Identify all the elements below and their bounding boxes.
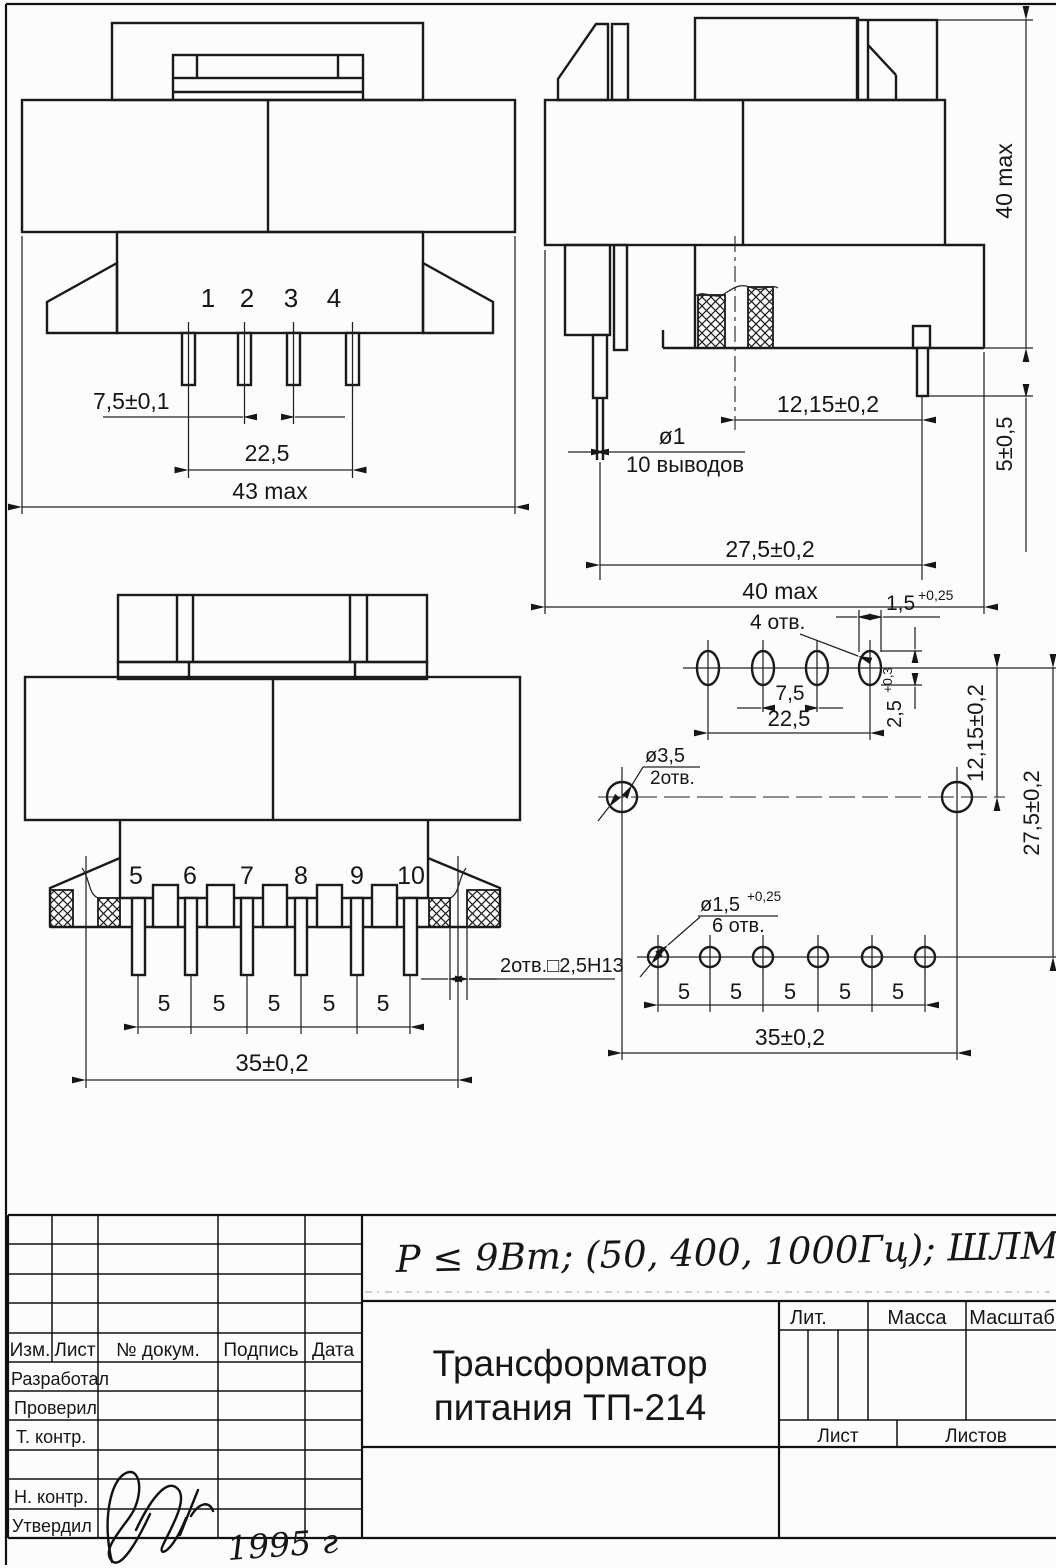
transformer-drawing-svg: 1 2 3 4 7,5±0,1 22,5 43 max xyxy=(0,0,1056,1568)
pitch-label: 5 xyxy=(213,990,226,1016)
dim-pin-span: 22,5 xyxy=(245,440,290,466)
title-block-roles: Разработал Проверил Т. контр. Н. контр. … xyxy=(11,1369,109,1536)
document-title-line1: Трансформатор xyxy=(432,1343,707,1384)
dim-hole-span: 35±0,2 xyxy=(235,1050,308,1077)
pin-2-label: 2 xyxy=(240,283,254,313)
front-view-outline xyxy=(22,23,515,385)
dim-pin-length: 5±0,5 xyxy=(992,417,1017,472)
pitch-label: 5 xyxy=(892,979,904,1004)
rear-view-outline xyxy=(25,595,520,975)
document-title-line2: питания ТП-214 xyxy=(434,1387,706,1428)
pin-9-label: 9 xyxy=(350,862,364,890)
side-view: ø1 10 выводов 12,15±0,2 27,5±0,2 40 max … xyxy=(545,18,1033,614)
mass-label: Масса xyxy=(887,1307,947,1329)
pin-4-label: 4 xyxy=(327,283,341,313)
pitch-label: 5 xyxy=(377,990,390,1016)
role-nkontr: Н. контр. xyxy=(14,1487,88,1507)
pin-5-label: 5 xyxy=(129,862,143,890)
big-holes xyxy=(598,767,1005,1060)
role-tkontr: Т. контр. xyxy=(16,1427,86,1447)
pin-1-label: 1 xyxy=(201,283,215,313)
dim-depth: 40 max xyxy=(742,578,818,604)
footprint-row-spacing: 27,5±0,2 xyxy=(1019,770,1044,855)
slot-pitch-dim: 7,5 xyxy=(775,682,804,705)
small-hole-count-label: 6 отв. xyxy=(712,915,765,937)
col-izm: Изм. xyxy=(10,1340,51,1361)
title-block-right-headers: Лит. Масса Масштаб Лист Листов xyxy=(790,1307,1055,1447)
slots-count-label: 4 отв. xyxy=(750,611,805,634)
pitch-label: 5 xyxy=(730,979,742,1004)
slot-width-tol: +0,25 xyxy=(918,587,954,603)
dim-body-width: 43 max xyxy=(232,478,308,504)
approval-signature xyxy=(108,1472,213,1563)
slot-span-dim: 22,5 xyxy=(768,706,811,731)
pitch-label: 5 xyxy=(323,990,336,1016)
dim-height: 40 max xyxy=(991,143,1017,219)
side-winding-hatch xyxy=(694,286,778,348)
pin-10-label: 10 xyxy=(397,862,425,890)
role-razrabotal: Разработал xyxy=(11,1369,109,1389)
slot-height-tol: +0,3 xyxy=(880,667,895,693)
footprint-view: 4 отв. 1,5 +0,25 2,5 +0,3 7,5 22,5 ø3,5 … xyxy=(598,587,1056,1060)
side-dimension-lines xyxy=(545,20,1033,614)
col-data: Дата xyxy=(312,1340,355,1361)
front-dimension-lines xyxy=(22,236,515,514)
col-list: Лист xyxy=(54,1340,96,1361)
front-pin-numbers: 1 2 3 4 xyxy=(201,283,341,313)
pitch-label: 5 xyxy=(158,990,171,1016)
rear-pitch-labels: 5 5 5 5 5 xyxy=(158,990,390,1016)
handwritten-spec-note: P ≤ 9Вт; (50, 400, 1000Гц); ШЛМ12×20 | xyxy=(394,1221,1056,1281)
sheet-label: Лист xyxy=(817,1426,859,1447)
small-hole-dia-label: ø1,5 xyxy=(700,894,740,916)
dim-pin-pitch: 7,5±0,1 xyxy=(93,388,170,414)
dim-row-spacing: 27,5±0,2 xyxy=(725,536,814,562)
drawing-sheet: 1 2 3 4 7,5±0,1 22,5 43 max xyxy=(0,0,1056,1568)
rear-view: 5 6 7 8 9 10 2отв.□2,5Н13 5 5 5 5 5 35±0… xyxy=(25,595,624,1088)
pitch-label: 5 xyxy=(678,979,690,1004)
pitch-label: 5 xyxy=(268,990,281,1016)
handwritten-year: 1995 г xyxy=(226,1521,340,1568)
side-view-outline xyxy=(545,18,984,460)
pitch-label: 5 xyxy=(784,979,796,1004)
pin-7-label: 7 xyxy=(240,862,254,890)
slot-width-dim: 1,5 xyxy=(886,592,915,615)
col-docnum: № докум. xyxy=(116,1340,199,1361)
pin-3-label: 3 xyxy=(284,283,298,313)
title-block-column-headers: Изм. Лист № докум. Подпись Дата xyxy=(10,1340,355,1361)
scale-label: Масштаб xyxy=(969,1307,1055,1329)
role-utverdil: Утвердил xyxy=(12,1516,92,1536)
front-view: 1 2 3 4 7,5±0,1 22,5 43 max xyxy=(22,23,515,514)
sheets-label: Листов xyxy=(945,1426,1007,1447)
sheet-frame xyxy=(6,4,1056,1565)
col-podpis: Подпись xyxy=(223,1340,298,1361)
footprint-hole-span: 35±0,2 xyxy=(755,1024,825,1050)
dim-row-offset: 12,15±0,2 xyxy=(777,391,879,417)
dim-lead-dia: ø1 xyxy=(659,423,686,449)
pin-6-label: 6 xyxy=(183,862,197,890)
lead-count-label: 10 выводов xyxy=(626,452,744,477)
footprint-pitch-labels: 5 5 5 5 5 xyxy=(678,979,904,1004)
footprint-row-offset: 12,15±0,2 xyxy=(963,684,988,782)
pitch-label: 5 xyxy=(839,979,851,1004)
big-hole-dia-label: ø3,5 xyxy=(645,745,685,767)
slot-height-dim-group: 2,5 +0,3 xyxy=(880,667,906,728)
slot-holes xyxy=(683,640,1056,740)
square-holes-note: 2отв.□2,5Н13 xyxy=(500,955,624,977)
slot-height-dim: 2,5 xyxy=(884,700,906,728)
big-hole-count-label: 2отв. xyxy=(650,768,695,789)
small-hole-tol-label: +0,25 xyxy=(747,889,781,904)
pin-8-label: 8 xyxy=(294,862,308,890)
role-proveril: Проверил xyxy=(14,1398,97,1418)
lit-label: Лит. xyxy=(790,1307,827,1329)
